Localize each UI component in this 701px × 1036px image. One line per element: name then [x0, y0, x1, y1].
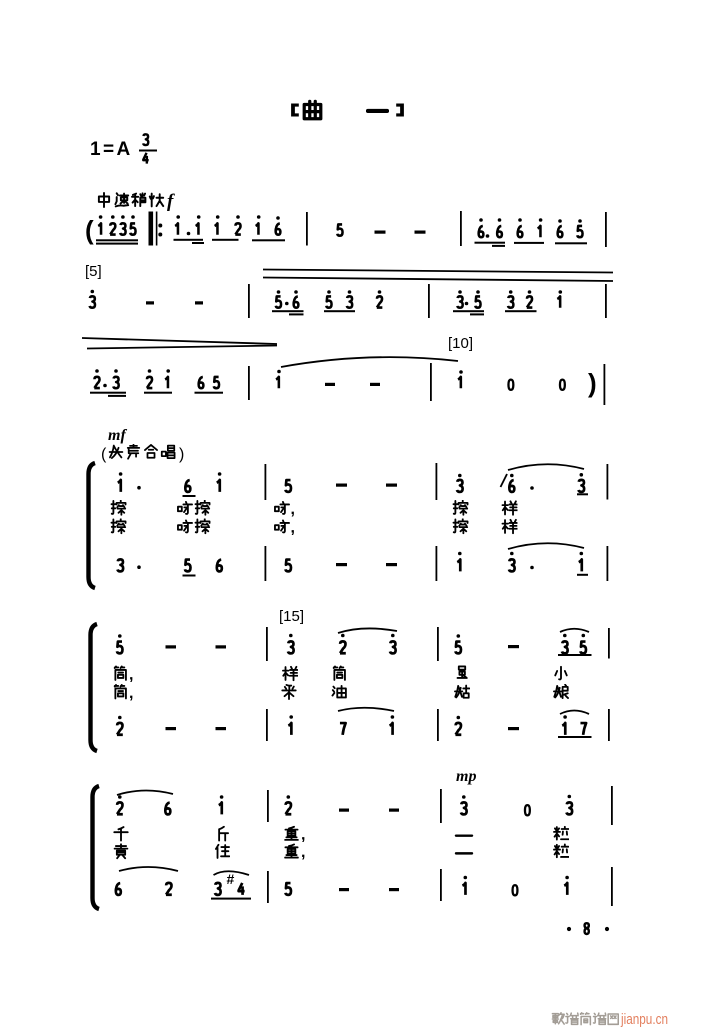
svg-text:#: # — [227, 871, 235, 887]
svg-text:[5]: [5] — [85, 263, 102, 280]
svg-text:1=A: 1=A — [90, 139, 133, 160]
svg-text:,: , — [301, 844, 305, 861]
svg-text:,: , — [129, 685, 133, 702]
svg-text:(: ( — [101, 446, 107, 463]
svg-text:,: , — [291, 501, 295, 518]
svg-text:[15]: [15] — [279, 608, 304, 625]
svg-text:): ) — [179, 446, 184, 463]
svg-text:): ) — [588, 368, 597, 398]
svg-text:jianpu.cn: jianpu.cn — [620, 1012, 668, 1028]
svg-text:mp: mp — [456, 768, 476, 785]
svg-text:,: , — [129, 667, 133, 684]
svg-text:(: ( — [85, 215, 94, 245]
svg-text:f: f — [167, 191, 175, 212]
svg-text:,: , — [291, 520, 295, 537]
svg-text:,: , — [301, 827, 305, 844]
svg-text:mf: mf — [108, 427, 127, 444]
svg-text:[10]: [10] — [448, 335, 473, 352]
